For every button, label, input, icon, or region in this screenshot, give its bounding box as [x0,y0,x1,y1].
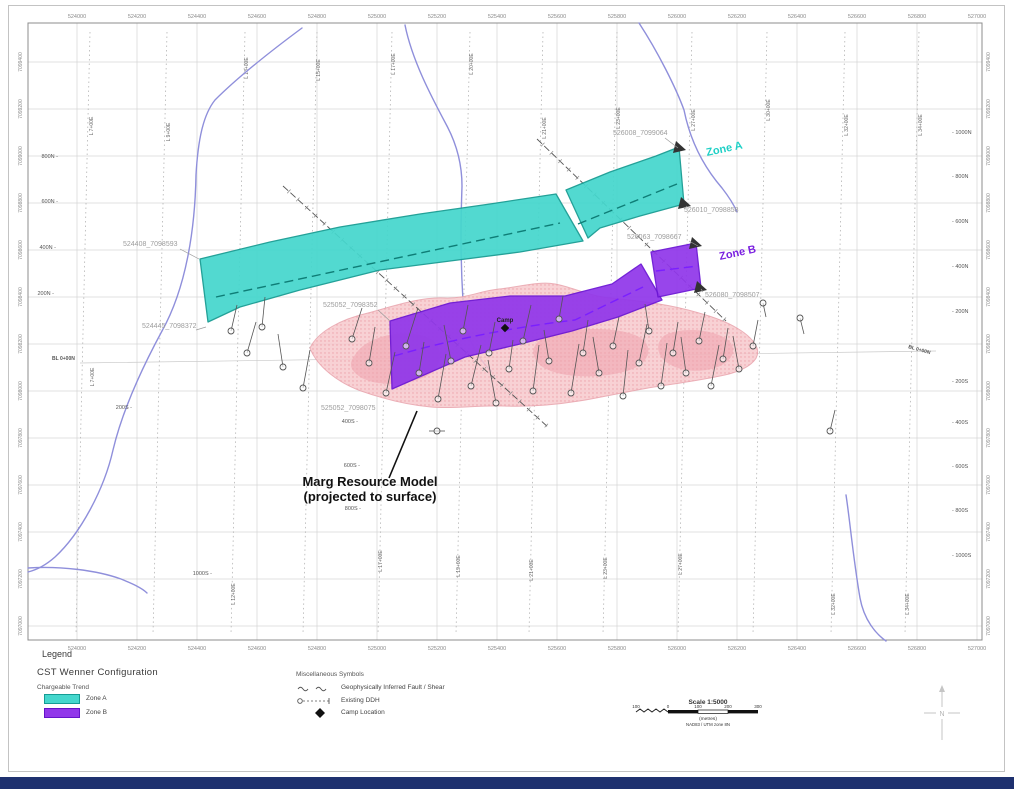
fault-shear-icon [296,683,334,693]
svg-text:L 7+00E: L 7+00E [89,116,95,135]
svg-text:0: 0 [667,704,670,709]
svg-text:400S -: 400S - [342,419,358,425]
svg-text:- 600N: - 600N [952,219,969,225]
svg-text:NAD83 / UTM zone 8N: NAD83 / UTM zone 8N [686,722,730,727]
svg-text:L 20+00E: L 20+00E [469,53,475,75]
svg-text:800N -: 800N - [41,154,58,160]
svg-text:- 800N: - 800N [952,174,969,180]
svg-text:7098600: 7098600 [986,240,992,260]
svg-text:526800: 526800 [908,14,926,20]
svg-text:BL 0+00N: BL 0+00N [907,344,931,356]
svg-text:Zone B: Zone B [718,243,757,262]
svg-text:524408_7098593: 524408_7098593 [123,241,178,248]
svg-text:Marg Resource Model: Marg Resource Model [302,474,437,489]
svg-text:7097200: 7097200 [986,569,992,589]
svg-text:7098200: 7098200 [18,334,24,354]
svg-text:526010_7098858: 526010_7098858 [684,207,739,214]
svg-text:7097400: 7097400 [18,522,24,542]
svg-text:- 200N: - 200N [952,309,969,315]
svg-text:100: 100 [632,704,640,709]
svg-text:526200: 526200 [728,14,746,20]
svg-text:L 27+00E: L 27+00E [691,109,697,131]
svg-text:L 17+00E: L 17+00E [378,550,384,572]
zone-b-legend-label: Zone B [86,709,107,716]
svg-text:525600: 525600 [548,646,566,652]
svg-text:L 17+00E: L 17+00E [391,53,397,75]
svg-text:526063_7098667: 526063_7098667 [627,234,682,241]
svg-text:524445_7098372: 524445_7098372 [142,323,197,330]
svg-text:7098800: 7098800 [986,193,992,213]
svg-text:L 15+00E: L 15+00E [316,59,322,81]
svg-text:1000S -: 1000S - [193,571,212,577]
zone-a-swatch [44,694,80,704]
svg-text:600N -: 600N - [41,199,58,205]
svg-text:525200: 525200 [428,14,446,20]
svg-text:L 7+00E: L 7+00E [90,367,96,386]
svg-text:525400: 525400 [488,14,506,20]
svg-text:526800: 526800 [908,646,926,652]
svg-text:7097800: 7097800 [18,428,24,448]
svg-text:Camp: Camp [497,318,514,324]
svg-text:L 23+00E: L 23+00E [603,557,609,579]
svg-text:- 1000S: - 1000S [952,553,972,559]
zone-b-swatch [44,708,80,718]
svg-text:526008_7099064: 526008_7099064 [613,130,668,137]
svg-text:526600: 526600 [848,646,866,652]
svg-text:L 12+00E: L 12+00E [231,583,237,605]
svg-text:L 13+00E: L 13+00E [244,57,250,79]
svg-text:525600: 525600 [548,14,566,20]
misc-symbols-title: Miscellaneous Symbols [296,671,364,678]
svg-text:524600: 524600 [248,646,266,652]
svg-text:300: 300 [754,704,762,709]
svg-text:7098400: 7098400 [986,287,992,307]
svg-text:524400: 524400 [188,646,206,652]
svg-text:527000: 527000 [968,14,986,20]
north-arrow-label: N [939,711,944,718]
svg-text:L 30+00E: L 30+00E [766,99,772,121]
svg-text:524200: 524200 [128,14,146,20]
svg-text:- 400S: - 400S [952,420,969,426]
svg-text:7097000: 7097000 [18,616,24,636]
svg-text:525200: 525200 [428,646,446,652]
svg-text:525800: 525800 [608,14,626,20]
camp-legend-label: Camp Location [341,709,385,716]
svg-text:L 34+00E: L 34+00E [918,114,924,136]
svg-text:524200: 524200 [128,646,146,652]
svg-text:525052_7098075: 525052_7098075 [321,405,376,412]
svg-text:525052_7098352: 525052_7098352 [323,302,378,309]
svg-text:526000: 526000 [668,646,686,652]
svg-text:524800: 524800 [308,646,326,652]
svg-text:L 32+00E: L 32+00E [844,114,850,136]
svg-text:525000: 525000 [368,14,386,20]
svg-text:7097800: 7097800 [986,428,992,448]
svg-text:BL 0+00N: BL 0+00N [52,356,75,362]
svg-text:7098000: 7098000 [986,381,992,401]
svg-text:L 23+00E: L 23+00E [616,107,622,129]
svg-text:7097200: 7097200 [18,569,24,589]
svg-text:L 9+00E: L 9+00E [166,122,172,141]
svg-text:525400: 525400 [488,646,506,652]
svg-text:7098400: 7098400 [18,287,24,307]
svg-text:527000: 527000 [968,646,986,652]
resource-model-callout: Marg Resource Model(projected to surface… [302,411,437,504]
svg-text:600S -: 600S - [344,463,360,469]
svg-text:- 400N: - 400N [952,264,969,270]
svg-text:100: 100 [694,704,702,709]
zone-a-legend-label: Zone A [86,695,107,702]
svg-text:200S -: 200S - [116,405,132,411]
svg-text:L 19+00E: L 19+00E [456,555,462,577]
svg-text:7097600: 7097600 [986,475,992,495]
svg-text:7098600: 7098600 [18,240,24,260]
existing-ddh-icon [296,696,334,706]
svg-text:524400: 524400 [188,14,206,20]
svg-text:7099000: 7099000 [18,146,24,166]
svg-text:400N -: 400N - [39,245,56,251]
svg-text:- 600S: - 600S [952,464,969,470]
svg-text:526000: 526000 [668,14,686,20]
svg-text:526200: 526200 [728,646,746,652]
svg-text:L 27+00E: L 27+00E [678,553,684,575]
svg-text:L 34+00E: L 34+00E [905,593,911,615]
svg-text:7097000: 7097000 [986,616,992,636]
svg-text:7097600: 7097600 [18,475,24,495]
svg-text:(projected to surface): (projected to surface) [304,489,437,504]
svg-text:- 800S: - 800S [952,508,969,514]
svg-text:7099400: 7099400 [986,52,992,72]
svg-text:200: 200 [724,704,732,709]
svg-text:7099200: 7099200 [986,99,992,119]
legend-chargeable-trend: Chargeable Trend [37,684,89,691]
svg-text:800S -: 800S - [345,506,361,512]
svg-text:L 32+00E: L 32+00E [831,593,837,615]
svg-text:200N -: 200N - [37,291,54,297]
svg-text:7099000: 7099000 [986,146,992,166]
svg-text:524600: 524600 [248,14,266,20]
map-canvas: 5240005240005242005242005244005244005246… [0,0,1014,775]
svg-text:526600: 526600 [848,14,866,20]
fault-legend-label: Geophysically Inferred Fault / Shear [341,684,445,691]
svg-text:7098000: 7098000 [18,381,24,401]
svg-text:525800: 525800 [608,646,626,652]
svg-text:L 21+00E: L 21+00E [529,559,535,581]
north-arrow-icon: N [920,682,964,744]
existing-ddh-legend-label: Existing DDH [341,697,380,704]
camp-location-icon [313,707,327,719]
svg-text:- 200S: - 200S [952,379,969,385]
svg-text:525000: 525000 [368,646,386,652]
svg-text:7099200: 7099200 [18,99,24,119]
svg-text:L 21+00E: L 21+00E [542,117,548,139]
svg-text:524000: 524000 [68,14,86,20]
svg-text:526400: 526400 [788,646,806,652]
scale-bar: Scale 1:50001000100200300(metres)NAD83 /… [628,695,788,731]
svg-text:- 1000N: - 1000N [952,130,972,136]
svg-text:7098200: 7098200 [986,334,992,354]
svg-text:524800: 524800 [308,14,326,20]
svg-text:7098800: 7098800 [18,193,24,213]
legend-section-cst: CST Wenner Configuration [37,668,158,678]
svg-text:7097400: 7097400 [986,522,992,542]
legend-title: Legend [42,650,72,660]
svg-text:526400: 526400 [788,14,806,20]
svg-text:7099400: 7099400 [18,52,24,72]
bottom-bar [0,777,1014,789]
svg-text:526080_7098507: 526080_7098507 [705,292,760,299]
